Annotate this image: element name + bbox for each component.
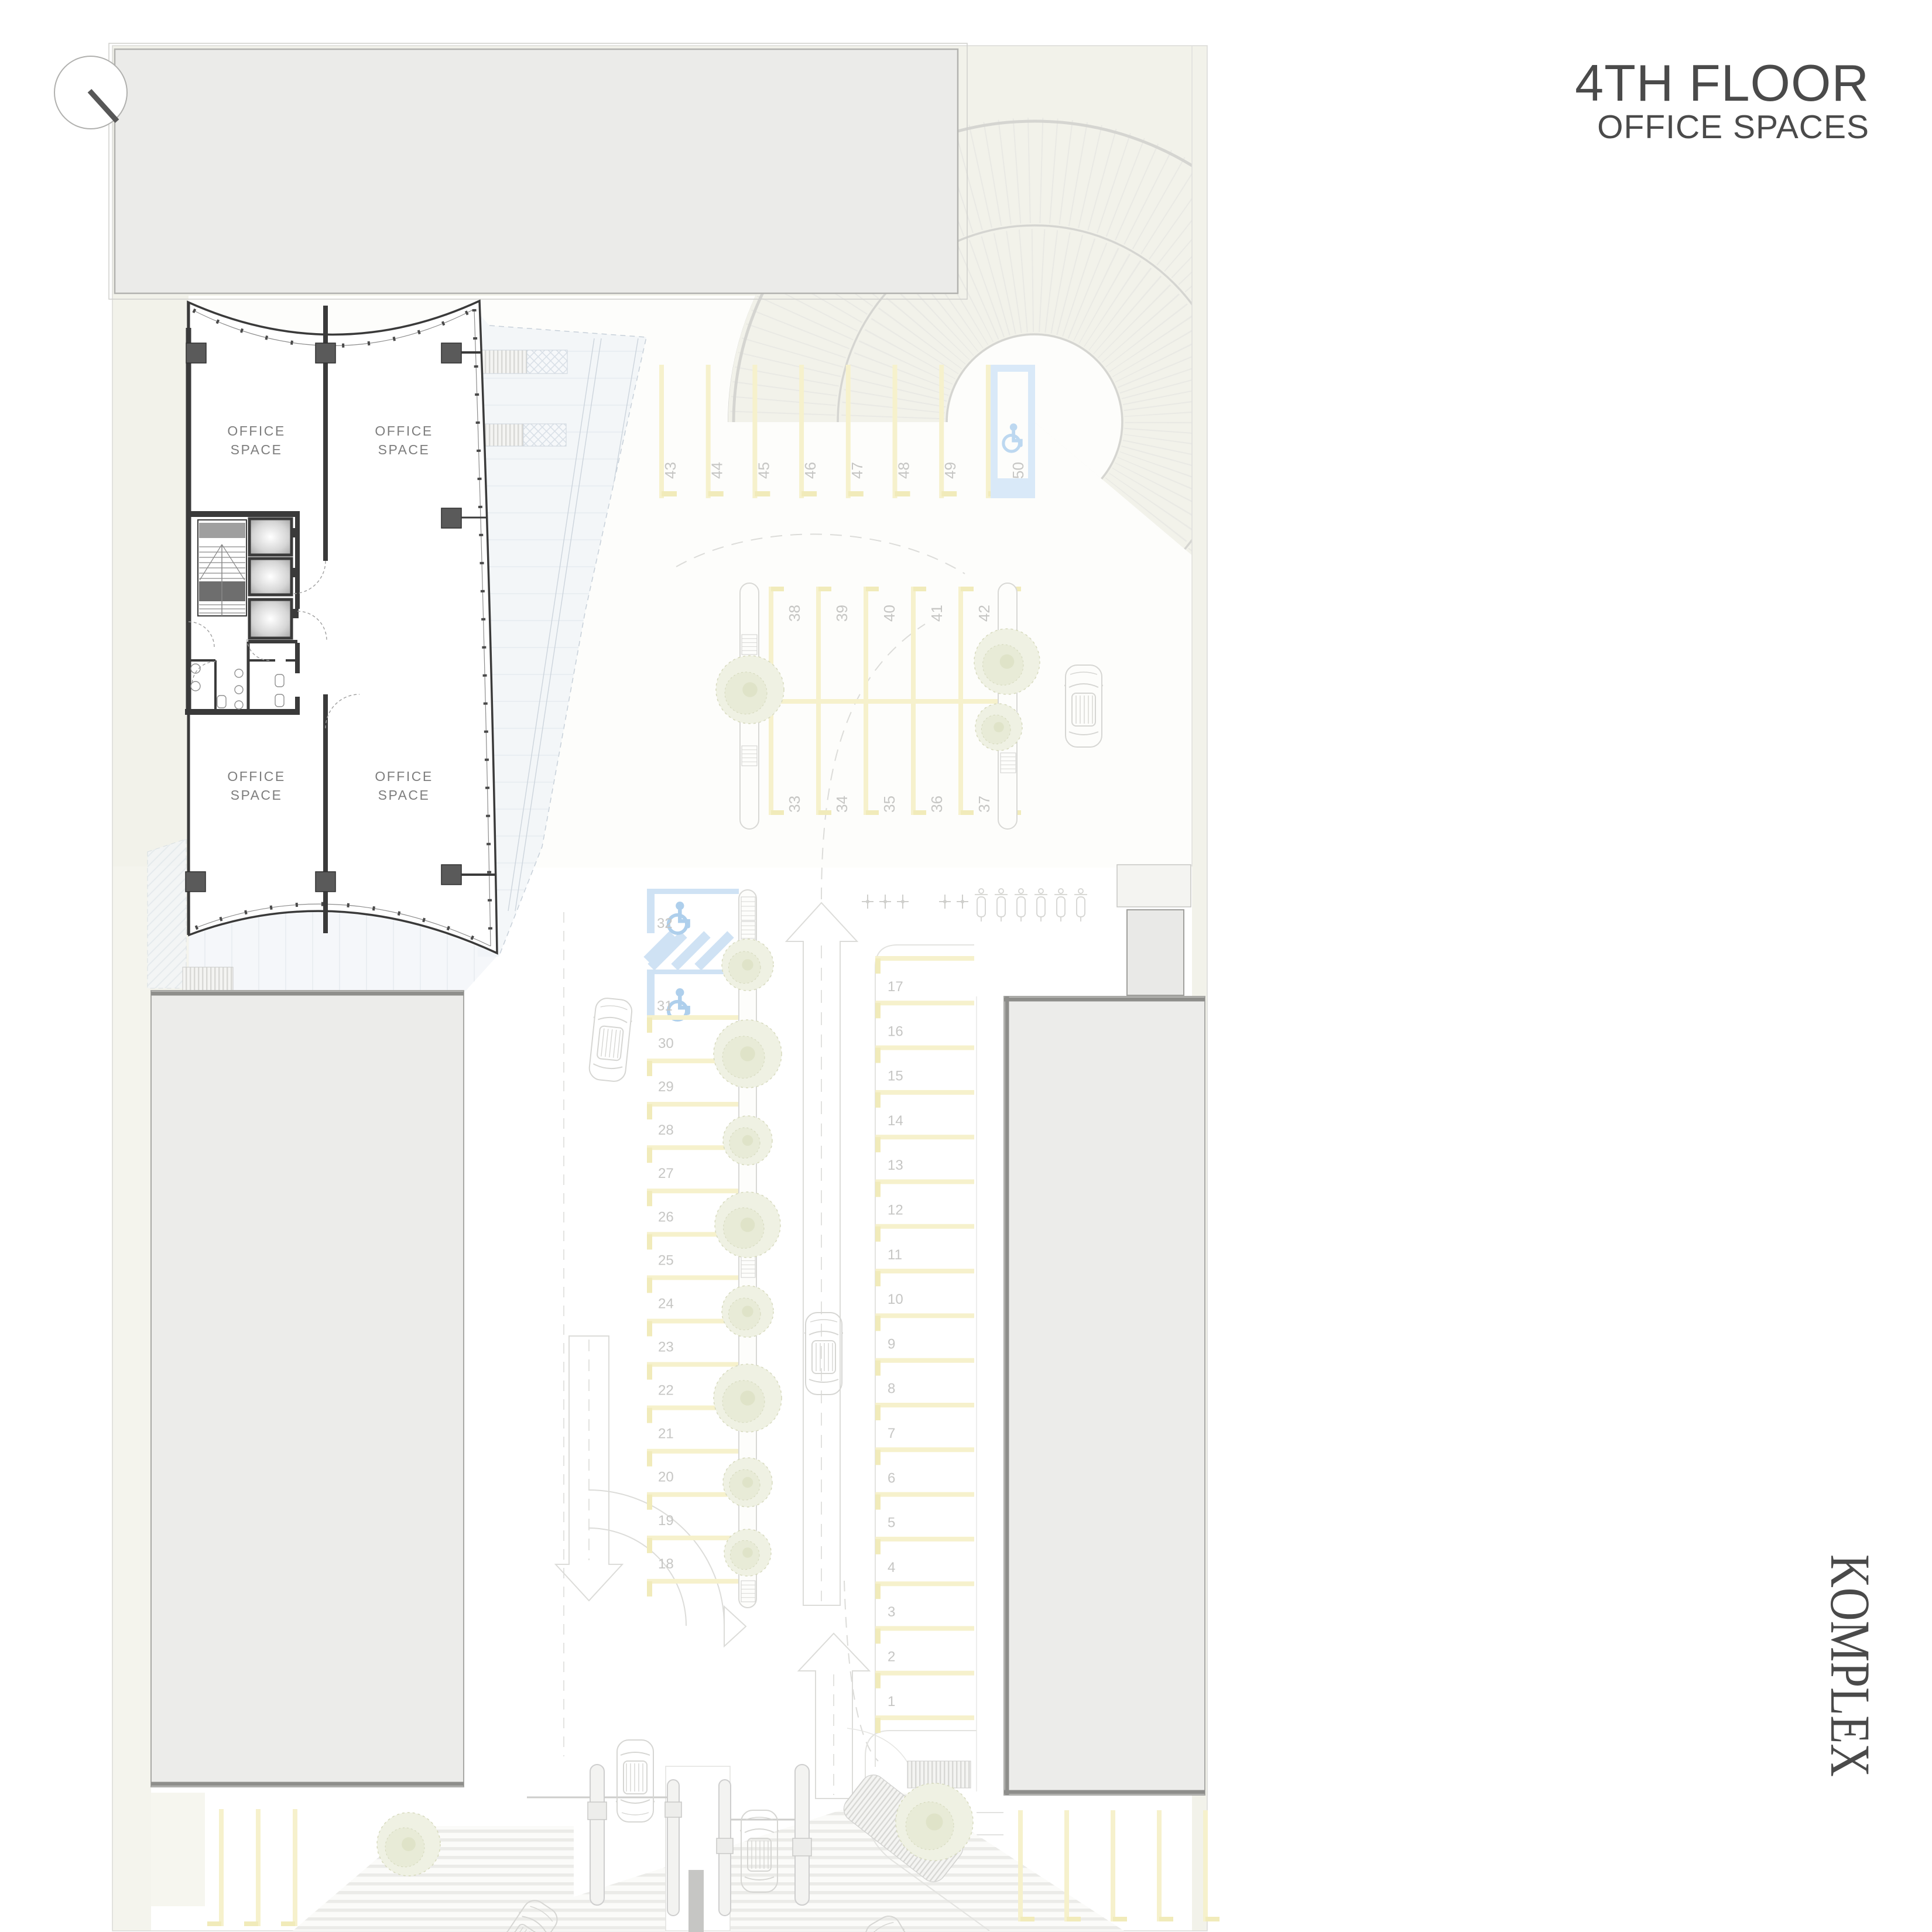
parking-space-number: 48 bbox=[895, 462, 913, 479]
stall-foot bbox=[941, 491, 957, 496]
stall-foot bbox=[875, 1405, 881, 1420]
tree-icon bbox=[722, 939, 773, 991]
toilet-fixture bbox=[275, 694, 284, 707]
room-label: SPACE bbox=[231, 787, 283, 803]
tree-icon bbox=[722, 1286, 773, 1337]
stall-foot bbox=[708, 491, 724, 496]
sink-fixture bbox=[191, 681, 200, 691]
stall-foot bbox=[875, 1584, 881, 1599]
stall-foot bbox=[913, 587, 926, 591]
stall-foot bbox=[647, 1408, 652, 1423]
parking-space-number: 50 bbox=[1009, 462, 1027, 479]
parking-space-number: 41 bbox=[928, 605, 946, 622]
stall-foot bbox=[1205, 1917, 1220, 1921]
stall-foot bbox=[818, 587, 831, 591]
room-label: OFFICE bbox=[375, 423, 433, 439]
stall-foot bbox=[875, 958, 881, 974]
tree-icon bbox=[974, 629, 1040, 694]
gate-pillar bbox=[688, 1870, 704, 1932]
site-plan-drawing: 4344454647484950383940414233343536373231… bbox=[0, 0, 1932, 1932]
building-step-mass bbox=[1117, 865, 1191, 907]
stall-foot bbox=[875, 1495, 881, 1510]
parking-space-number: 33 bbox=[786, 796, 803, 813]
stall-foot bbox=[961, 587, 974, 591]
parking-space-number: 23 bbox=[658, 1339, 674, 1355]
site-ground-strip bbox=[112, 991, 151, 1931]
stall-foot bbox=[875, 1718, 881, 1733]
parking-space-number: 35 bbox=[881, 796, 898, 813]
accessible-stall-band bbox=[647, 970, 655, 1018]
sink-fixture bbox=[235, 669, 243, 677]
stall-foot bbox=[866, 587, 879, 591]
stall-foot bbox=[848, 491, 864, 496]
gate-bollard-island bbox=[667, 1780, 679, 1916]
gate-bollard-island bbox=[795, 1765, 809, 1905]
stall-foot bbox=[875, 1673, 881, 1688]
stall-foot bbox=[913, 810, 926, 815]
west-building-mass bbox=[151, 991, 464, 1787]
stall-foot bbox=[662, 491, 677, 496]
skylight-vent bbox=[523, 424, 566, 446]
parking-space-number: 49 bbox=[941, 462, 959, 479]
parking-space-number: 6 bbox=[888, 1470, 895, 1486]
parking-space-number: 25 bbox=[658, 1252, 674, 1268]
adjacent-building-roof bbox=[115, 49, 958, 293]
parking-space-number: 36 bbox=[928, 796, 946, 813]
room-label: OFFICE bbox=[227, 423, 285, 439]
gate-bollard-island bbox=[590, 1765, 604, 1905]
stall-foot bbox=[647, 1234, 652, 1249]
tree-icon bbox=[714, 1020, 782, 1088]
tree-icon bbox=[975, 704, 1022, 751]
parking-space-number: 31 bbox=[657, 998, 673, 1014]
stall-foot bbox=[647, 1451, 652, 1467]
parking-space-number: 37 bbox=[975, 796, 993, 813]
stall-foot bbox=[961, 810, 974, 815]
stall-foot bbox=[647, 1538, 652, 1553]
stall-foot bbox=[895, 491, 910, 496]
toilet-fixture bbox=[217, 696, 226, 708]
elevator-bank bbox=[249, 519, 299, 638]
room-label: OFFICE bbox=[375, 769, 433, 784]
parking-space-number: 28 bbox=[658, 1122, 674, 1138]
gate-cabinet bbox=[588, 1802, 607, 1820]
hatched-walk bbox=[148, 839, 186, 988]
project-name-vertical: KOMPLEX bbox=[1819, 1554, 1882, 1777]
parking-space-number: 9 bbox=[888, 1336, 895, 1352]
stall-foot bbox=[281, 1921, 295, 1926]
stall-foot bbox=[866, 810, 879, 815]
toilet-fixture bbox=[275, 674, 284, 687]
accessible-stall-band bbox=[647, 889, 739, 894]
room-label: SPACE bbox=[231, 442, 283, 457]
parking-space-number: 4 bbox=[888, 1560, 895, 1575]
parking-space-number: 15 bbox=[888, 1068, 903, 1084]
tree-icon bbox=[377, 1813, 440, 1876]
sink-fixture bbox=[235, 686, 243, 694]
architectural-sheet: 4344454647484950383940414233343536373231… bbox=[0, 0, 1932, 1932]
parking-space-number: 30 bbox=[658, 1036, 674, 1051]
stall-foot bbox=[647, 1277, 652, 1293]
stall-foot bbox=[875, 1182, 881, 1197]
site-ground-pad bbox=[151, 1793, 205, 1906]
stall-foot bbox=[647, 1581, 652, 1597]
parking-space-number: 26 bbox=[658, 1209, 674, 1225]
stall-foot bbox=[755, 491, 770, 496]
stall-foot bbox=[875, 1271, 881, 1286]
stall-foot bbox=[647, 1104, 652, 1119]
parking-space-number: 3 bbox=[888, 1604, 895, 1620]
stall-foot bbox=[771, 810, 784, 815]
parking-space-number: 42 bbox=[975, 605, 993, 622]
east-building-mass bbox=[1004, 865, 1205, 1795]
sink-fixture bbox=[235, 701, 243, 709]
stall-foot bbox=[875, 1539, 881, 1554]
stall-foot bbox=[801, 491, 817, 496]
parking-space-number: 19 bbox=[658, 1513, 674, 1529]
parking-space-number: 46 bbox=[801, 462, 819, 479]
north-arrow bbox=[54, 56, 127, 129]
floor-plan: OFFICE SPACE OFFICE SPACE OFFICE SPACE O… bbox=[185, 301, 497, 953]
stall-foot bbox=[647, 1321, 652, 1336]
stall-foot bbox=[647, 1495, 652, 1510]
tree-icon bbox=[714, 1364, 782, 1432]
stall-foot bbox=[647, 1147, 652, 1163]
parking-space-number: 18 bbox=[658, 1556, 674, 1572]
parking-space-number: 16 bbox=[888, 1023, 903, 1039]
stall-foot bbox=[875, 1048, 881, 1063]
parking-space-number: 5 bbox=[888, 1515, 895, 1531]
accessible-stall-band bbox=[647, 889, 655, 933]
building-step-mass bbox=[1127, 910, 1184, 995]
parking-space-number: 45 bbox=[755, 462, 772, 479]
stall-foot bbox=[875, 1227, 881, 1242]
stall-foot bbox=[647, 1018, 652, 1033]
parking-space-number: 24 bbox=[658, 1296, 674, 1311]
parking-space-number: 32 bbox=[657, 916, 673, 931]
tree-icon bbox=[715, 1192, 780, 1258]
parking-space-number: 29 bbox=[658, 1079, 674, 1095]
parking-space-number: 39 bbox=[833, 605, 851, 622]
skylight-vent bbox=[527, 350, 567, 374]
tree-icon bbox=[723, 1458, 772, 1507]
parking-space-number: 34 bbox=[833, 796, 851, 813]
room-label: SPACE bbox=[378, 787, 430, 803]
parking-space-number: 12 bbox=[888, 1203, 903, 1218]
tree-icon bbox=[716, 656, 784, 724]
parking-space-number: 21 bbox=[658, 1426, 674, 1442]
parking-space-number: 11 bbox=[888, 1247, 902, 1263]
stall-foot bbox=[875, 1092, 881, 1108]
parking-space-number: 43 bbox=[662, 462, 679, 479]
stair-core bbox=[198, 520, 246, 616]
parking-space-number: 14 bbox=[888, 1113, 903, 1129]
title-block: 4TH FLOOR OFFICE SPACES bbox=[1575, 54, 1869, 146]
parking-space-number: 2 bbox=[888, 1649, 895, 1665]
sheet-subtitle: OFFICE SPACES bbox=[1597, 108, 1869, 146]
stall-foot bbox=[875, 1361, 881, 1376]
stall-foot bbox=[207, 1921, 221, 1926]
stall-foot bbox=[875, 1137, 881, 1152]
stall-foot bbox=[647, 1061, 652, 1076]
stall-foot bbox=[771, 587, 784, 591]
parking-space-number: 27 bbox=[658, 1166, 674, 1181]
gate-cabinet bbox=[717, 1838, 733, 1854]
room-label: SPACE bbox=[378, 442, 430, 457]
parking-space-number: 22 bbox=[658, 1383, 674, 1399]
parking-space-number: 47 bbox=[848, 462, 866, 479]
stall-foot bbox=[647, 1365, 652, 1380]
tree-icon bbox=[724, 1529, 771, 1576]
parking-space-number: 7 bbox=[888, 1426, 895, 1441]
parking-space-number: 13 bbox=[888, 1157, 903, 1173]
parking-space-number: 44 bbox=[708, 462, 726, 479]
tree-icon bbox=[896, 1783, 973, 1861]
stall-foot bbox=[875, 1629, 881, 1644]
parking-space-number: 17 bbox=[888, 979, 903, 995]
stall-foot bbox=[875, 1003, 881, 1018]
sheet-title: 4TH FLOOR bbox=[1575, 54, 1869, 112]
parking-space-number: 20 bbox=[658, 1469, 674, 1485]
stall-foot bbox=[1067, 1917, 1081, 1921]
stall-foot bbox=[244, 1921, 258, 1926]
stall-foot bbox=[647, 1191, 652, 1206]
tree-icon bbox=[723, 1116, 772, 1165]
parking-space-number: 10 bbox=[888, 1292, 903, 1307]
parking-space-number: 38 bbox=[786, 605, 803, 622]
room-label: OFFICE bbox=[227, 769, 285, 784]
stall-foot bbox=[875, 1450, 881, 1465]
stall-foot bbox=[1020, 1917, 1034, 1921]
parking-space-number: 40 bbox=[881, 605, 898, 622]
stall-foot bbox=[1159, 1917, 1173, 1921]
parking-space-number: 8 bbox=[888, 1381, 895, 1397]
curtain-wall-shell bbox=[188, 301, 497, 953]
parking-space-number: 1 bbox=[888, 1694, 895, 1710]
stall-foot bbox=[818, 810, 831, 815]
stall-foot bbox=[1113, 1917, 1127, 1921]
gate-cabinet bbox=[793, 1838, 811, 1856]
gate-cabinet bbox=[665, 1802, 681, 1817]
stall-foot bbox=[875, 1316, 881, 1331]
